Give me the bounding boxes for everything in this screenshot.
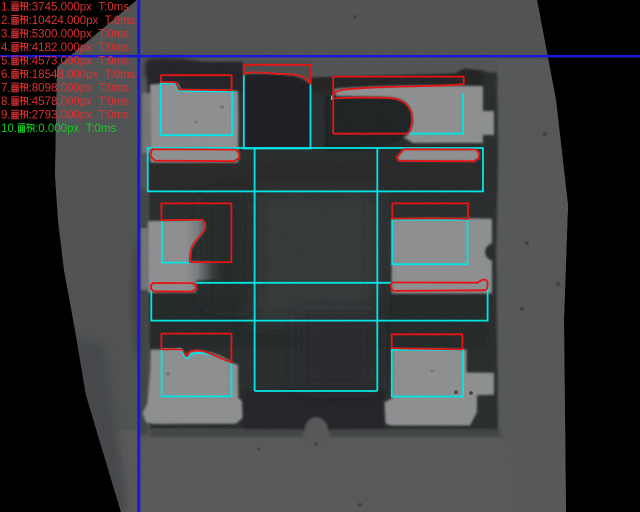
- svg-text:10.: 10.: [1, 123, 17, 135]
- svg-text::4573.000px T:0ms: :4573.000px T:0ms: [29, 56, 130, 68]
- svg-text:5.: 5.: [1, 56, 11, 68]
- svg-text::2793.000px T:0ms: :2793.000px T:0ms: [29, 110, 130, 122]
- svg-text::18548.000px T:0ms: :18548.000px T:0ms: [29, 69, 136, 81]
- svg-text:1.: 1.: [1, 2, 11, 14]
- svg-text:9.: 9.: [1, 110, 11, 122]
- svg-text:4.: 4.: [1, 42, 11, 54]
- svg-text::5300.000px T:0ms: :5300.000px T:0ms: [29, 29, 130, 41]
- svg-text::10424.000px T:0ms: :10424.000px T:0ms: [29, 15, 136, 27]
- svg-text::4578.000px T:0ms: :4578.000px T:0ms: [29, 96, 130, 108]
- svg-text::0.000px T:0ms: :0.000px T:0ms: [35, 123, 116, 135]
- svg-text::8098.000px T:0ms: :8098.000px T:0ms: [29, 83, 130, 95]
- svg-text:2.: 2.: [1, 15, 11, 27]
- svg-text:8.: 8.: [1, 96, 11, 108]
- svg-text:6.: 6.: [1, 69, 11, 81]
- svg-text:7.: 7.: [1, 83, 11, 95]
- svg-text::3745.000px T:0ms: :3745.000px T:0ms: [29, 2, 130, 14]
- svg-text::4182.000px T:0ms: :4182.000px T:0ms: [29, 42, 130, 54]
- svg-text:3.: 3.: [1, 29, 11, 41]
